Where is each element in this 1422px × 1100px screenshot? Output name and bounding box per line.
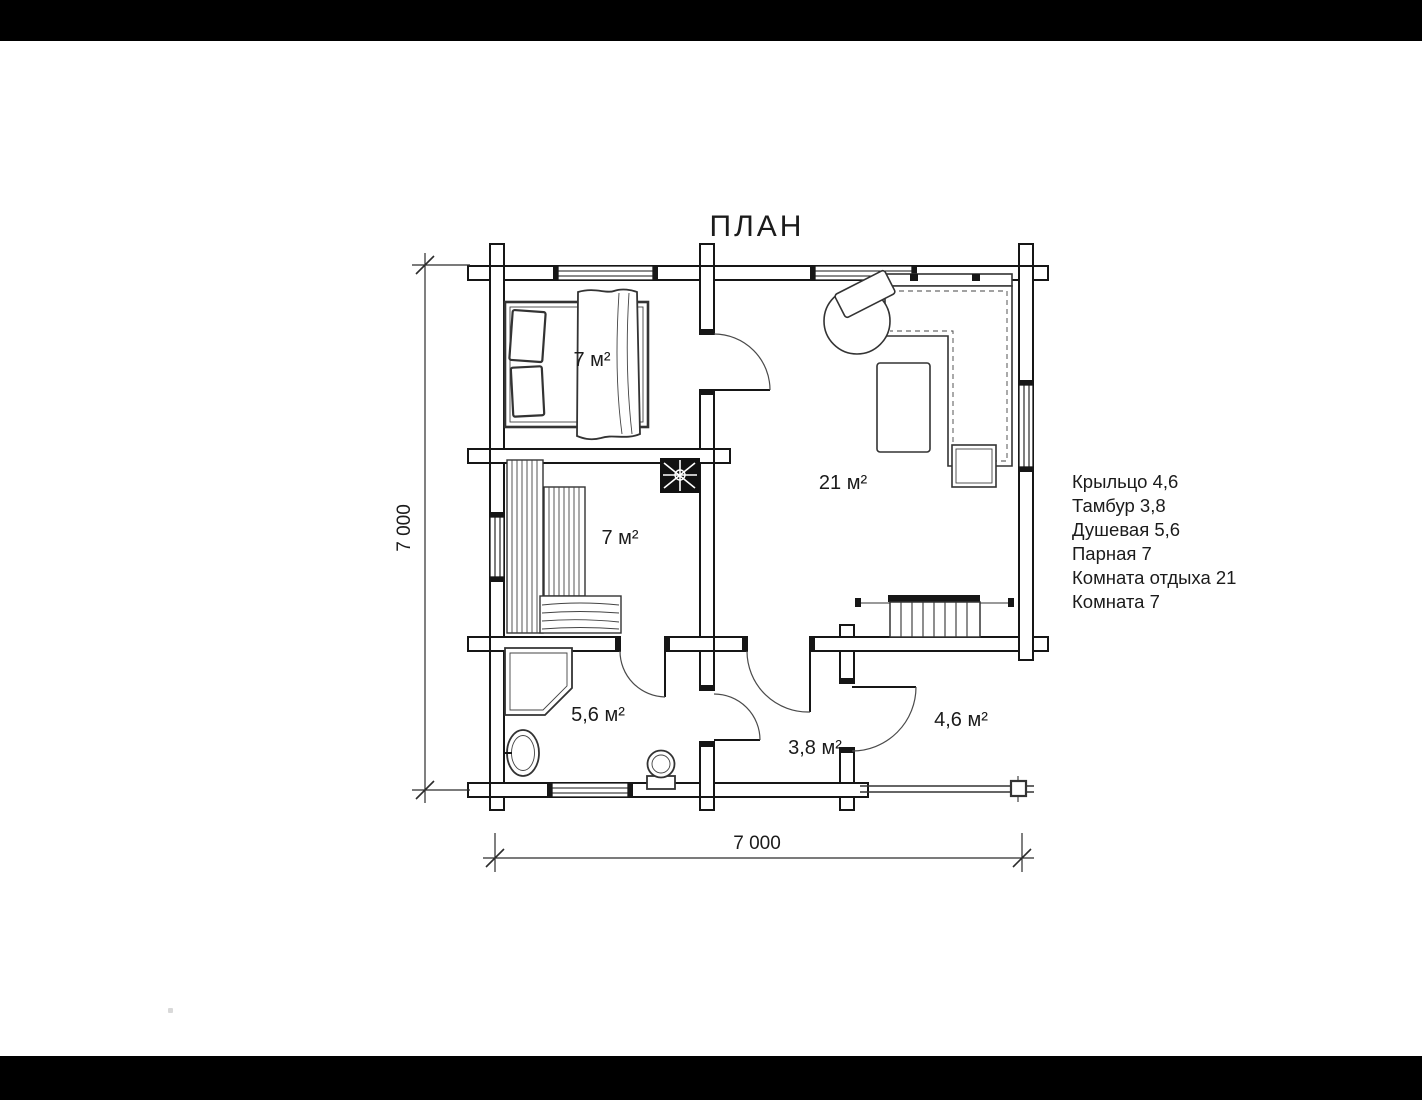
- dimension-horizontal-label: 7 000: [733, 833, 781, 854]
- legend-item-steam: Парная 7: [1072, 543, 1152, 564]
- door-bedroom: [714, 334, 770, 390]
- room-legend: Крыльцо 4,6 Тамбур 3,8 Душевая 5,6 Парна…: [1072, 471, 1236, 612]
- label-shower-area: 5,6 м²: [571, 704, 625, 726]
- stair-symbol: [855, 595, 1014, 637]
- door-shower: [714, 694, 760, 740]
- dimension-vertical: 7 000: [394, 253, 470, 803]
- coffee-table-symbol: [877, 363, 930, 452]
- doors: [620, 334, 916, 751]
- floor-plan-page: ПЛАН: [0, 0, 1422, 1100]
- stove-symbol: [660, 458, 700, 493]
- plan-title: ПЛАН: [710, 210, 805, 243]
- label-lounge-area: 21 м²: [819, 472, 868, 494]
- porch-railing-symbol: [860, 776, 1034, 802]
- door-steam: [620, 651, 665, 697]
- legend-item-porch: Крыльцо 4,6: [1072, 471, 1178, 492]
- dimension-horizontal: 7 000: [483, 833, 1034, 872]
- shower-cabin-symbol: [505, 648, 572, 715]
- window-lounge-right: [1019, 380, 1033, 472]
- legend-item-lounge: Комната отдыха 21: [1072, 567, 1236, 588]
- sink-symbol: [504, 730, 539, 776]
- legend-item-tambour: Тамбур 3,8: [1072, 495, 1166, 516]
- floor-plan-drawing: ПЛАН: [0, 0, 1422, 1100]
- label-bedroom-area: 7 м²: [573, 349, 610, 371]
- label-tambour-area: 3,8 м²: [788, 737, 842, 759]
- label-steam-area: 7 м²: [601, 527, 638, 549]
- legend-item-room: Комната 7: [1072, 591, 1160, 612]
- door-opening-caps: [615, 329, 854, 753]
- window-bedroom: [553, 266, 658, 280]
- door-lounge: [747, 651, 810, 712]
- door-porch-entrance: [852, 687, 916, 751]
- window-steam-left: [490, 512, 504, 582]
- window-shower-bottom: [547, 783, 633, 797]
- watermark-dot: [168, 1008, 173, 1013]
- legend-item-shower: Душевая 5,6: [1072, 519, 1180, 540]
- dimension-vertical-label: 7 000: [394, 504, 415, 552]
- toilet-symbol: [647, 751, 675, 790]
- label-porch-area: 4,6 м²: [934, 709, 988, 731]
